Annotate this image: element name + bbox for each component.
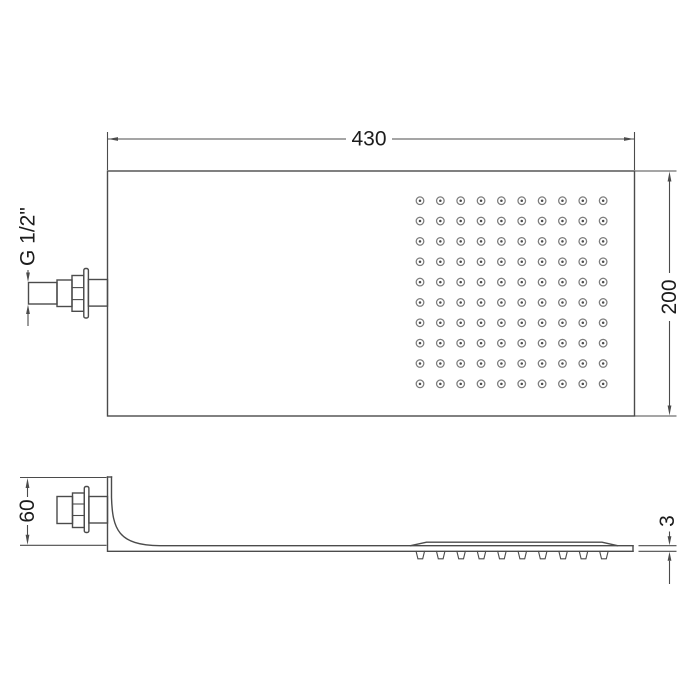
nozzle-center [480, 322, 483, 325]
inlet-collar [57, 497, 73, 524]
nozzle-center [480, 281, 483, 284]
nozzle-center [602, 301, 605, 304]
side-nozzle [457, 551, 465, 558]
plan-view: 430 200 G 1/2" [17, 128, 682, 417]
arrowhead [26, 273, 30, 283]
nozzle-center [541, 261, 544, 264]
side-nozzle [600, 551, 608, 558]
nozzle-center [582, 281, 585, 284]
side-nozzle [477, 551, 485, 558]
nozzle-center [561, 362, 564, 365]
side-nozzle [518, 551, 526, 558]
nozzle-grid [416, 197, 607, 388]
nozzle-center [439, 240, 442, 243]
dim-height: 200 [635, 171, 681, 416]
nozzle-center [521, 199, 524, 202]
nozzle-center [500, 342, 503, 345]
nozzle-center [582, 362, 585, 365]
inlet-hex-nut [72, 276, 84, 312]
nozzle-center [500, 281, 503, 284]
nozzle-center [459, 281, 462, 284]
nozzle-center [602, 362, 605, 365]
nozzle-center [439, 322, 442, 325]
nozzle-center [602, 383, 605, 386]
nozzle-center [419, 240, 422, 243]
nozzle-center [480, 220, 483, 223]
nozzle-center [480, 261, 483, 264]
nozzle-center [459, 362, 462, 365]
nozzle-center [541, 220, 544, 223]
arrowhead [26, 535, 30, 545]
nozzle-center [521, 362, 524, 365]
plan-inlet-fitting [29, 269, 108, 319]
nozzle-center [582, 261, 585, 264]
nozzle-center [439, 199, 442, 202]
nozzle-center [500, 199, 503, 202]
nozzle-center [582, 220, 585, 223]
dim-width-label: 430 [351, 128, 386, 151]
dim-thickness: 3 [639, 515, 680, 584]
nozzle-center [541, 281, 544, 284]
nozzle-center [561, 220, 564, 223]
inlet-hex-nut [73, 493, 85, 528]
nozzle-center [419, 322, 422, 325]
nozzle-center [582, 199, 585, 202]
arrowhead [108, 137, 118, 141]
nozzle-center [439, 261, 442, 264]
dim-height-label: 200 [658, 279, 681, 314]
dim-thread: G 1/2" [17, 207, 40, 326]
nozzle-center [439, 220, 442, 223]
nozzle-center [500, 261, 503, 264]
nozzle-center [521, 342, 524, 345]
nozzle-center [459, 261, 462, 264]
nozzle-center [480, 383, 483, 386]
nozzle-center [480, 301, 483, 304]
inlet-stub [89, 497, 108, 524]
nozzle-center [602, 261, 605, 264]
nozzle-center [459, 322, 462, 325]
nozzle-center [480, 362, 483, 365]
nozzle-center [541, 301, 544, 304]
inlet-collar [57, 280, 72, 307]
nozzle-center [459, 240, 462, 243]
nozzle-center [582, 240, 585, 243]
side-view: 60 3 [16, 477, 679, 584]
nozzle-center [439, 362, 442, 365]
bracket-outer-profile [108, 477, 634, 551]
nozzle-center [500, 362, 503, 365]
nozzle-center [561, 240, 564, 243]
nozzle-center [419, 383, 422, 386]
nozzle-center [521, 281, 524, 284]
thread-size-label: G 1/2" [17, 207, 40, 266]
nozzle-center [541, 199, 544, 202]
arrowhead [668, 536, 672, 545]
shower-head-drawing: 430 200 G 1/2" [0, 0, 700, 700]
side-nozzle [437, 551, 445, 558]
nozzle-center [459, 220, 462, 223]
nozzle-center [561, 383, 564, 386]
inlet-pipe-end [29, 283, 58, 305]
nozzle-center [582, 383, 585, 386]
dim-width: 430 [108, 128, 635, 171]
nozzle-center [419, 362, 422, 365]
nozzle-center [561, 261, 564, 264]
nozzle-center [459, 301, 462, 304]
nozzle-center [582, 342, 585, 345]
nozzle-center [521, 301, 524, 304]
nozzle-center [561, 342, 564, 345]
bracket-inner-profile [112, 477, 634, 546]
nozzle-center [541, 362, 544, 365]
arrowhead [668, 406, 672, 416]
nozzle-center [521, 322, 524, 325]
side-nozzle [579, 551, 587, 558]
nozzle-center [541, 240, 544, 243]
dim-side-height: 60 [16, 478, 107, 546]
nozzle-center [419, 261, 422, 264]
nozzle-center [602, 322, 605, 325]
nozzle-center [541, 383, 544, 386]
arrowhead [668, 172, 672, 182]
side-nozzle [498, 551, 506, 558]
nozzle-center [419, 281, 422, 284]
nozzle-center [521, 240, 524, 243]
nozzle-center [459, 199, 462, 202]
nozzle-center [602, 342, 605, 345]
nozzle-center [480, 199, 483, 202]
nozzle-center [541, 342, 544, 345]
side-nozzles [416, 551, 608, 558]
nozzle-center [521, 261, 524, 264]
dim-side-height-label: 60 [16, 499, 39, 522]
arrowhead [26, 305, 30, 315]
nozzle-center [561, 199, 564, 202]
nozzle-center [439, 301, 442, 304]
side-inlet-fitting [57, 487, 108, 533]
nozzle-center [419, 220, 422, 223]
nozzle-center [439, 383, 442, 386]
nozzle-center [459, 383, 462, 386]
nozzle-center [582, 301, 585, 304]
nozzle-center [561, 301, 564, 304]
technical-drawing-canvas: 430 200 G 1/2" [0, 0, 700, 700]
nozzle-center [500, 220, 503, 223]
nozzle-center [602, 199, 605, 202]
nozzle-center [541, 322, 544, 325]
nozzle-center [602, 240, 605, 243]
arrowhead [26, 478, 30, 488]
nozzle-center [521, 383, 524, 386]
nozzle-center [480, 342, 483, 345]
nozzle-center [439, 281, 442, 284]
nozzle-center [480, 240, 483, 243]
nozzle-center [602, 281, 605, 284]
plan-body-outline [108, 171, 635, 416]
side-nozzle [539, 551, 547, 558]
nozzle-center [500, 322, 503, 325]
side-nozzle [416, 551, 424, 558]
nozzle-center [419, 301, 422, 304]
dim-thickness-label: 3 [656, 515, 679, 527]
inlet-stub [88, 280, 107, 307]
nozzle-center [500, 240, 503, 243]
nozzle-center [439, 342, 442, 345]
arrowhead [624, 137, 634, 141]
nozzle-center [561, 281, 564, 284]
nozzle-center [582, 322, 585, 325]
arrowhead [668, 552, 672, 561]
nozzle-center [500, 383, 503, 386]
side-nozzle [559, 551, 567, 558]
nozzle-center [419, 199, 422, 202]
nozzle-center [459, 342, 462, 345]
nozzle-center [561, 322, 564, 325]
nozzle-center [521, 220, 524, 223]
nozzle-center [419, 342, 422, 345]
nozzle-center [602, 220, 605, 223]
nozzle-center [500, 301, 503, 304]
